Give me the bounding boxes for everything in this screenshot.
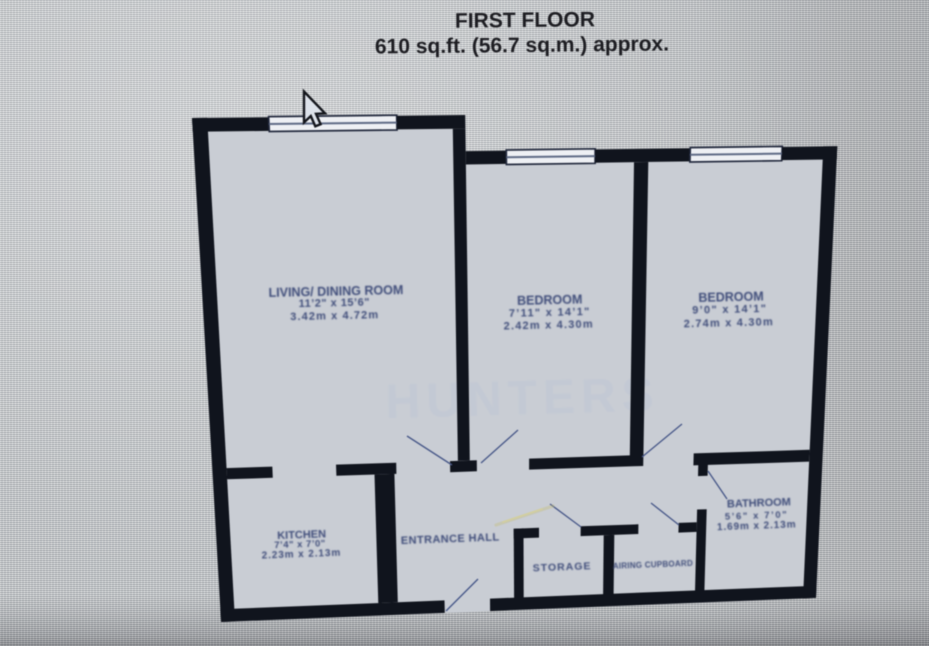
svg-text:2.74m x 4.30m: 2.74m x 4.30m bbox=[684, 316, 774, 330]
svg-text:9’0" x 14’1": 9’0" x 14’1" bbox=[692, 303, 767, 317]
svg-text:STORAGE: STORAGE bbox=[533, 560, 592, 574]
svg-text:HUNTERS: HUNTERS bbox=[385, 368, 660, 429]
svg-text:7’11" x 14’1": 7’11" x 14’1" bbox=[509, 306, 591, 320]
svg-text:11’2" x 15’6": 11’2" x 15’6" bbox=[298, 297, 370, 311]
svg-text:BATHROOM: BATHROOM bbox=[727, 496, 791, 510]
svg-text:FIRST FLOOR: FIRST FLOOR bbox=[455, 8, 595, 32]
svg-text:610 sq.ft. (56.7 sq.m.) approx: 610 sq.ft. (56.7 sq.m.) approx. bbox=[375, 32, 669, 58]
svg-text:2.42m x 4.30m: 2.42m x 4.30m bbox=[503, 318, 593, 332]
svg-text:3.42m x 4.72m: 3.42m x 4.72m bbox=[290, 309, 379, 323]
